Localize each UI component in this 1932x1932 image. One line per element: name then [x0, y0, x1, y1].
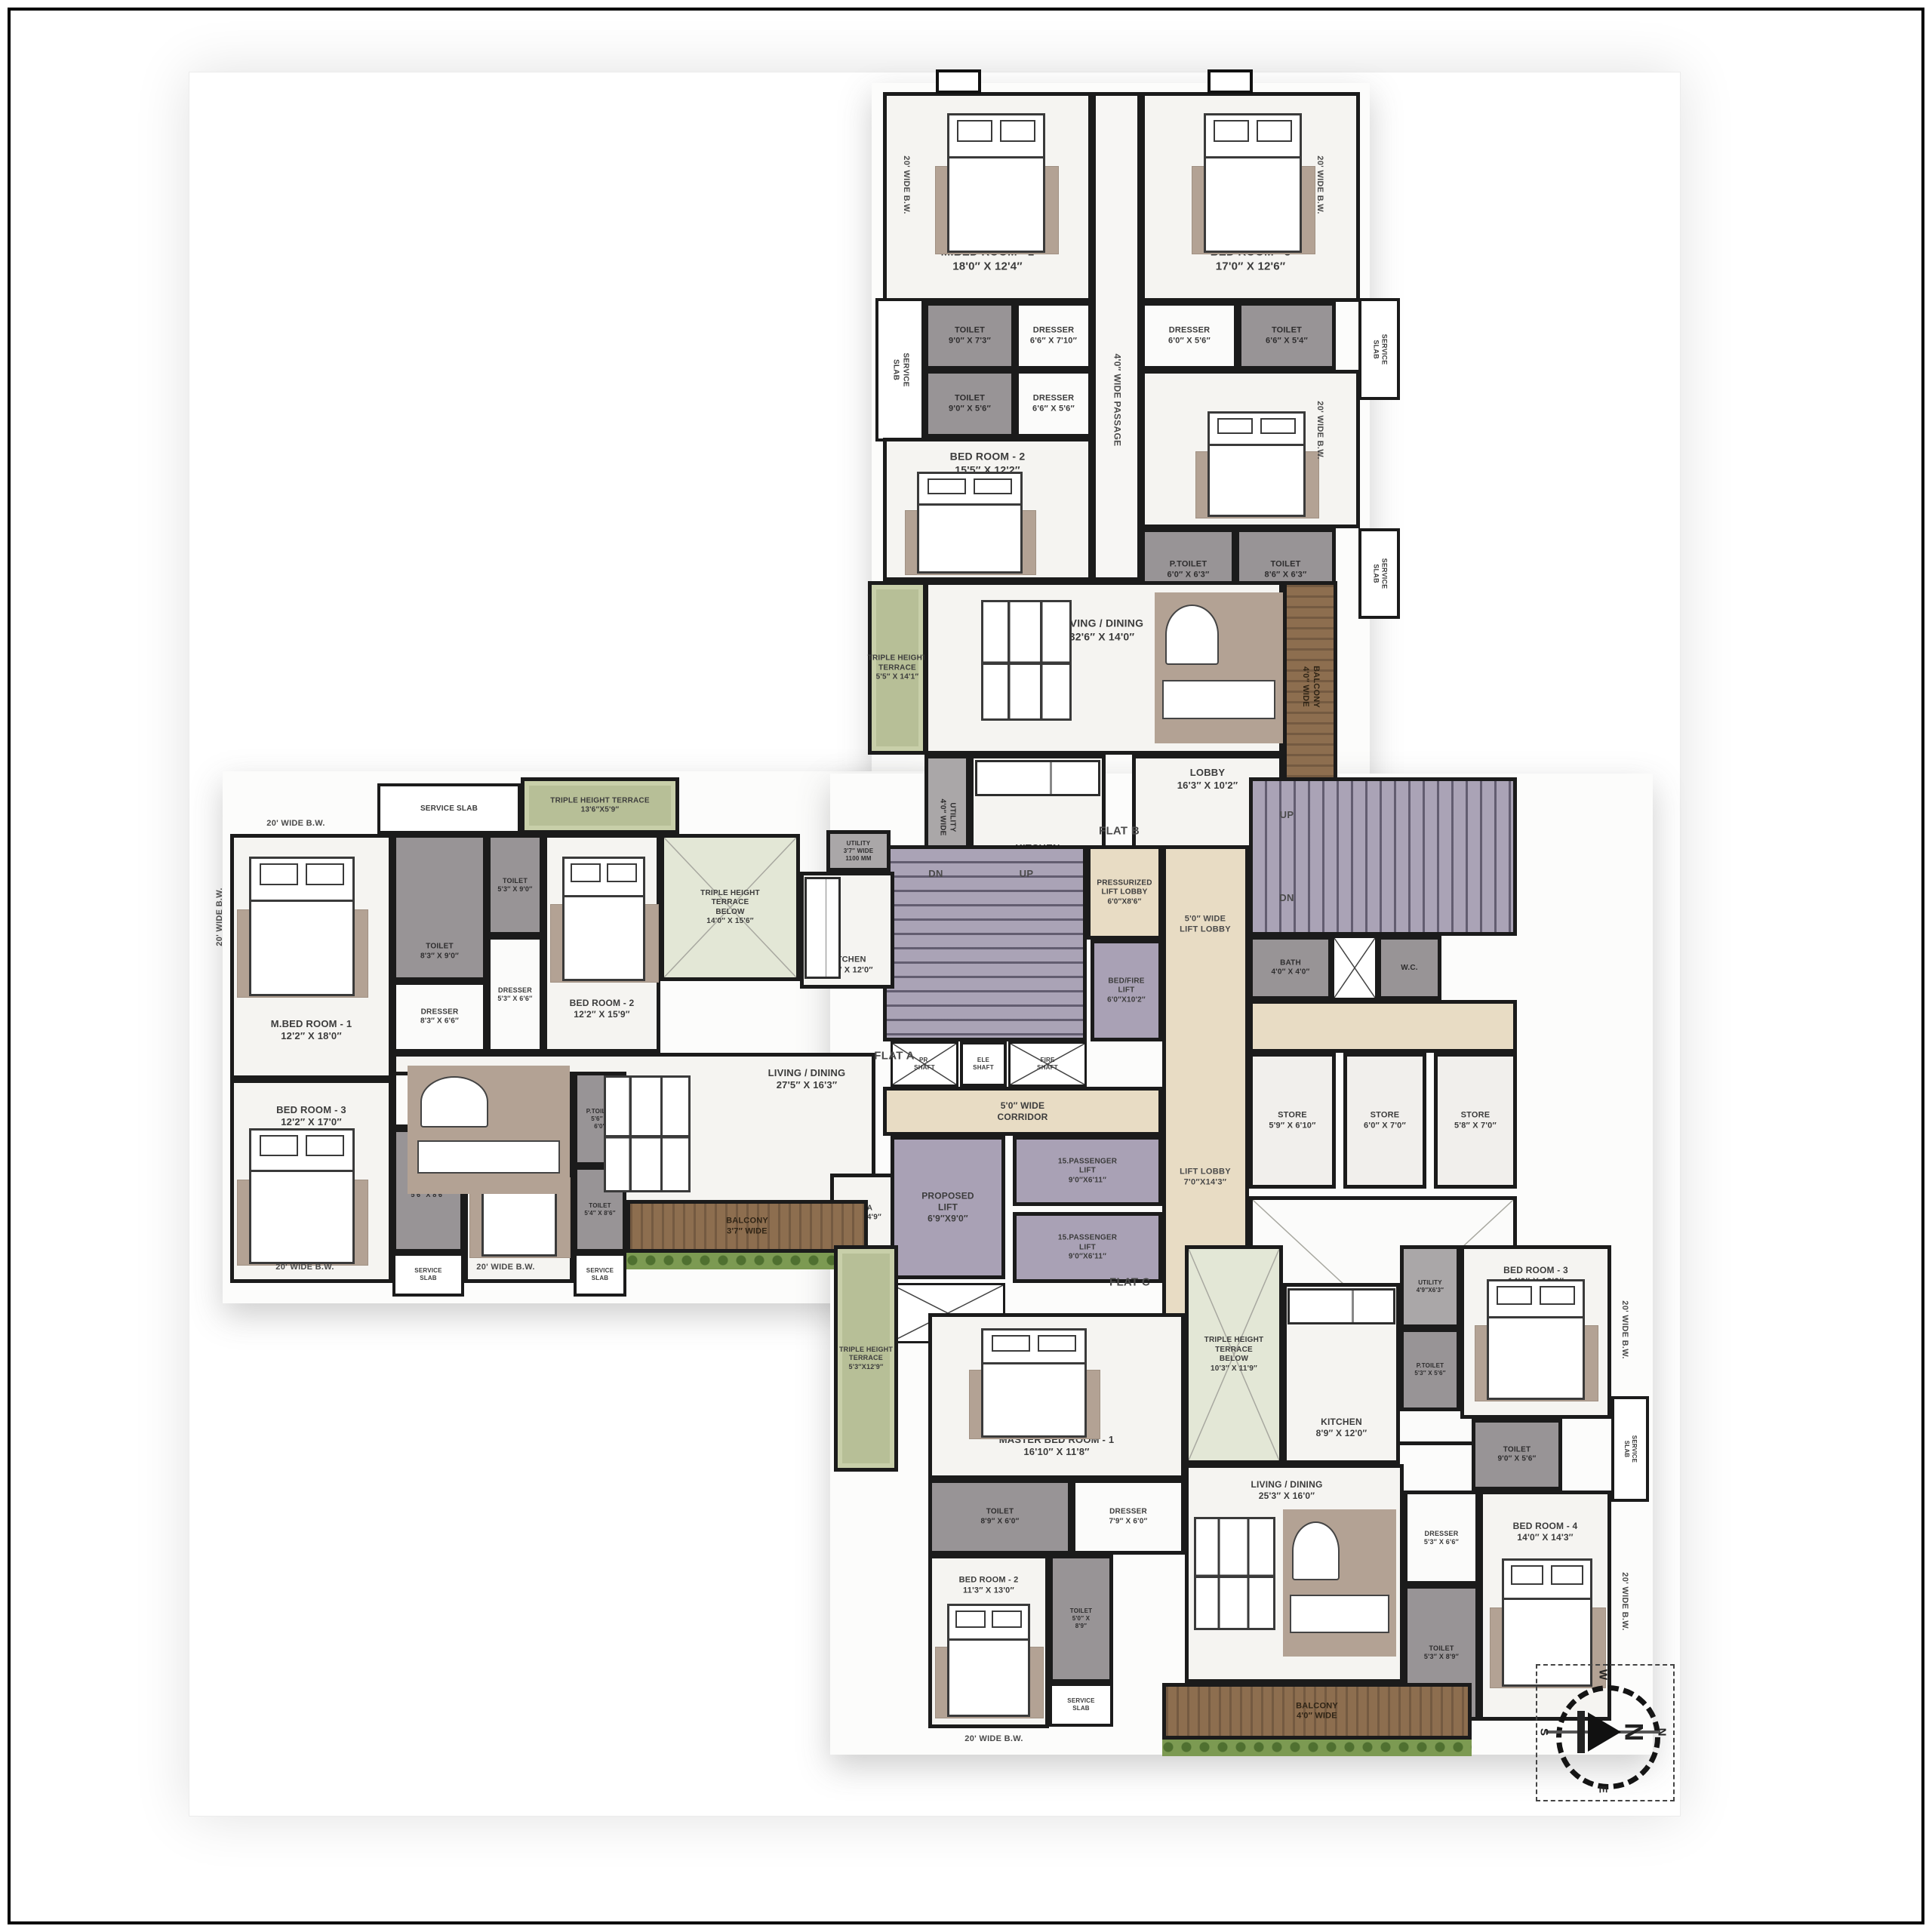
bed-part	[917, 503, 1023, 506]
compass-letter-w: W	[1597, 1669, 1610, 1680]
compass-needle-label: N	[1619, 1723, 1648, 1742]
annotation-20-wide-b-w-: 20' WIDE B.W.	[215, 888, 226, 946]
flatc-shrub	[1162, 1740, 1472, 1756]
bed-part	[562, 895, 645, 897]
bed-part	[249, 900, 355, 902]
flata-toilet-1	[392, 834, 487, 981]
kitchen-counter-icon	[1287, 1288, 1395, 1324]
bed-part	[1502, 1598, 1592, 1600]
annotation-4-0-wide-passage: 4'0″ WIDE PASSAGE	[1112, 354, 1123, 447]
bed-part	[955, 1611, 986, 1628]
bed-part	[260, 1135, 298, 1156]
bed-part	[1540, 1286, 1575, 1305]
core-passenger-lift-1	[1013, 1136, 1162, 1206]
bed-part	[249, 1170, 355, 1172]
annotation-up: UP	[1020, 868, 1034, 880]
flata-terrace-below	[660, 834, 800, 981]
core-store-3	[1434, 1053, 1517, 1189]
core-wc	[1377, 936, 1441, 1000]
bed-icon	[947, 1604, 1030, 1717]
annotation-20-wide-b-w-: 20' WIDE B.W.	[1619, 1300, 1629, 1358]
bed-icon	[947, 113, 1045, 253]
sofa-icon	[1155, 592, 1283, 743]
flatc-service-slab-right	[1611, 1396, 1649, 1502]
flatb-balcony	[1283, 581, 1337, 792]
bed-part	[1207, 444, 1306, 446]
bed-part	[974, 478, 1012, 494]
core-pr-shaft	[891, 1041, 958, 1087]
flata-dresser-1	[392, 981, 487, 1053]
core-bed-fire-lift	[1091, 940, 1162, 1041]
bed-part	[992, 1611, 1022, 1628]
north-arrow-icon	[1588, 1712, 1621, 1752]
annotation-flat-c: FLAT C	[1109, 1276, 1150, 1291]
bed-part	[1038, 1335, 1076, 1352]
annotation-5-0-wide-lift-lobby: 5'0″ WIDE LIFT LOBBY	[1180, 914, 1231, 935]
flata-toilet-2	[487, 834, 543, 936]
flatc-balcony	[1162, 1683, 1472, 1740]
flata-service-slab-top	[377, 783, 521, 834]
annotation-flat-b: FLAT B	[1099, 825, 1140, 839]
annotation-lift-lobby-7-0-x14-3-: LIFT LOBBY 7'0″X14'3″	[1180, 1167, 1231, 1188]
bed-part	[1257, 120, 1292, 142]
bed-icon	[981, 1328, 1087, 1438]
bed-part	[947, 156, 1045, 158]
bed-part	[1551, 1565, 1583, 1585]
flatb-triple-height-terrace	[868, 581, 927, 755]
sofa-part	[1292, 1521, 1340, 1580]
flatb-service-slab-left	[875, 298, 924, 441]
flatc-terrace-below	[1185, 1245, 1283, 1464]
bed-part	[928, 478, 966, 494]
sofa-icon	[1283, 1509, 1396, 1657]
bed-part	[607, 863, 637, 882]
flatb-passage	[1092, 92, 1141, 581]
bed-icon	[1207, 411, 1306, 517]
bed-icon	[917, 472, 1023, 574]
flatb-service-slab-right-1	[1358, 298, 1400, 400]
sofa-icon	[408, 1066, 570, 1194]
core-proposed-lift	[891, 1136, 1005, 1279]
flatc-triple-height-terrace	[834, 1245, 898, 1472]
compass-letter-n: N	[1656, 1728, 1669, 1737]
sofa-part	[1290, 1595, 1389, 1633]
sofa-part	[1165, 605, 1219, 665]
flatb-toilet-3	[1238, 302, 1336, 370]
flata-triple-height-terrace	[521, 777, 679, 834]
flatc-dresser-1	[1072, 1479, 1185, 1555]
core-store-lobby	[1249, 1000, 1517, 1053]
kitchen-counter-icon	[975, 760, 1100, 796]
bed-part	[981, 1362, 1087, 1364]
bed-icon	[249, 1128, 355, 1264]
floor-plan-canvas: M.BED ROOM - 1 18'0″ X 12'4″BED ROOM - 3…	[0, 0, 1932, 1932]
service-duct	[1207, 69, 1253, 94]
flatc-p-toilet	[1400, 1328, 1460, 1411]
sofa-part	[1162, 680, 1275, 719]
bed-part	[306, 863, 344, 885]
sofa-part	[417, 1140, 560, 1174]
core-store-2	[1343, 1053, 1426, 1189]
sofa-part	[420, 1076, 488, 1128]
bed-icon	[562, 857, 645, 981]
kitchen-counter-icon	[804, 877, 841, 979]
bed-part	[1000, 120, 1035, 142]
core-shaft-right	[1332, 936, 1377, 1000]
service-duct	[936, 69, 981, 94]
annotation-dn: DN	[1279, 892, 1294, 904]
annotation-flat-a: FLAT A	[874, 1050, 914, 1064]
flata-service-slab-1	[392, 1253, 464, 1297]
bed-part	[957, 120, 992, 142]
core-fire-shaft	[1008, 1041, 1087, 1087]
compass-letter-s: S	[1538, 1728, 1551, 1736]
flatb-service-slab-right-2	[1358, 528, 1400, 619]
flatb-dresser-1	[1015, 302, 1092, 370]
flatb-dresser-3	[1141, 302, 1238, 370]
bed-part	[1497, 1286, 1532, 1305]
annotation-up: UP	[1280, 809, 1294, 821]
bed-part	[1511, 1565, 1543, 1585]
bed-part	[947, 1638, 1030, 1641]
annotation-20-wide-b-w-: 20' WIDE B.W.	[1619, 1572, 1629, 1630]
bed-icon	[1487, 1279, 1585, 1400]
core-bath	[1249, 936, 1332, 1000]
flatc-dresser-2	[1404, 1491, 1479, 1585]
core-stair-left	[883, 845, 1087, 1041]
annotation-20-wide-b-w-: 20' WIDE B.W.	[266, 819, 325, 829]
core-passenger-lift-2	[1013, 1212, 1162, 1283]
bed-part	[306, 1135, 344, 1156]
dining-table-icon	[604, 1075, 691, 1192]
dining-table-icon	[1194, 1517, 1275, 1630]
core-pressurized-lift-lobby	[1087, 845, 1162, 940]
flatb-toilet-1	[924, 302, 1015, 370]
bed-part	[1217, 418, 1253, 434]
compass-bar	[1577, 1711, 1585, 1753]
annotation-dn: DN	[928, 868, 943, 880]
annotation-20-wide-b-w-: 20' WIDE B.W.	[476, 1263, 534, 1273]
annotation-20-wide-b-w-: 20' WIDE B.W.	[900, 155, 911, 214]
flata-balcony	[626, 1200, 868, 1253]
bed-part	[992, 1335, 1030, 1352]
flatc-toilet-2	[928, 1479, 1072, 1555]
flata-service-slab-2	[574, 1253, 626, 1297]
compass-letter-e: E	[1597, 1786, 1610, 1793]
bed-part	[571, 863, 601, 882]
flatc-toilet-3	[1049, 1555, 1113, 1683]
core-stair-right	[1249, 777, 1517, 936]
core-store-1	[1249, 1053, 1336, 1189]
annotation-20-wide-b-w-: 20' WIDE B.W.	[1314, 155, 1324, 214]
core-corridor	[883, 1087, 1162, 1136]
annotation-20-wide-b-w-: 20' WIDE B.W.	[1314, 401, 1324, 459]
flata-dresser-2	[487, 936, 543, 1053]
dining-table-icon	[981, 600, 1072, 721]
flata-utility	[826, 830, 891, 872]
bed-part	[1487, 1316, 1585, 1318]
bed-icon	[249, 857, 355, 996]
bed-part	[1260, 418, 1296, 434]
annotation-20-wide-b-w-: 20' WIDE B.W.	[964, 1734, 1023, 1745]
bed-part	[1204, 156, 1302, 158]
annotation-20-wide-b-w-: 20' WIDE B.W.	[275, 1263, 334, 1273]
bed-part	[1214, 120, 1249, 142]
bed-part	[260, 863, 298, 885]
core-ele-shaft	[960, 1041, 1007, 1087]
flatc-toilet-1	[1472, 1419, 1562, 1491]
flatc-utility	[1400, 1245, 1460, 1328]
flatb-toilet-2	[924, 370, 1015, 438]
flata-shrub	[626, 1253, 868, 1269]
flatb-dresser-2	[1015, 370, 1092, 438]
bed-icon	[1204, 113, 1302, 253]
flatc-service-slab-2	[1049, 1683, 1113, 1727]
